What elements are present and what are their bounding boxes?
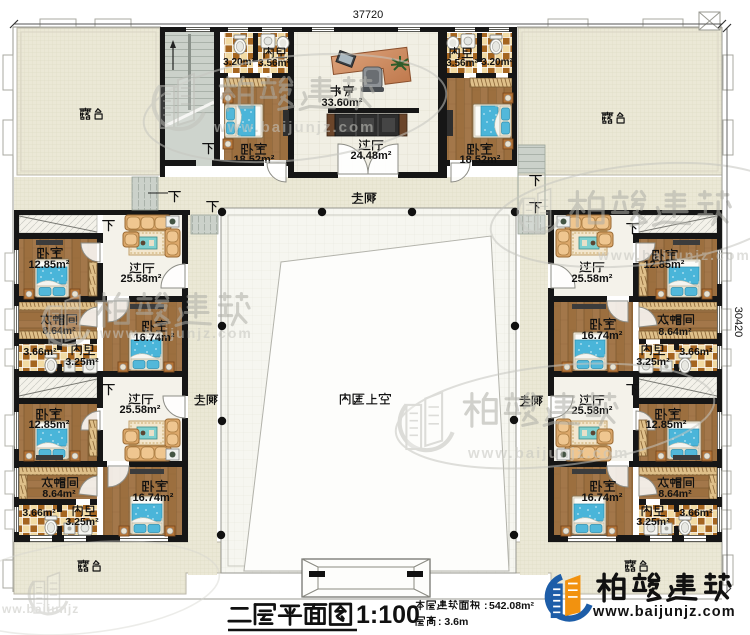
svg-text:ww.baijunjz: ww.baijunjz	[1, 602, 79, 616]
svg-text:3.66m²: 3.66m²	[679, 346, 713, 358]
svg-text:: 3.6m: : 3.6m	[438, 616, 468, 628]
svg-text:www.baijunjz.com: www.baijunjz.com	[592, 604, 736, 620]
svg-text:37720: 37720	[353, 9, 384, 21]
svg-text:16.74m²: 16.74m²	[582, 492, 623, 504]
svg-text:25.58m²: 25.58m²	[121, 273, 162, 285]
svg-text:542.08m²: 542.08m²	[489, 600, 534, 612]
svg-text:3.66m²: 3.66m²	[679, 507, 713, 519]
svg-text:25.58m²: 25.58m²	[572, 273, 613, 285]
svg-text:25.58m²: 25.58m²	[120, 404, 161, 416]
svg-text:18.52m²: 18.52m²	[460, 154, 501, 166]
svg-text:8.64m²: 8.64m²	[658, 488, 692, 500]
svg-text:3.56m²: 3.56m²	[446, 58, 478, 69]
svg-text:8.64m²: 8.64m²	[42, 488, 76, 500]
svg-text:3.25m²: 3.25m²	[65, 516, 99, 528]
svg-text:3.25m²: 3.25m²	[65, 356, 99, 368]
svg-text:24.48m²: 24.48m²	[351, 150, 392, 162]
svg-text:16.74m²: 16.74m²	[582, 330, 623, 342]
svg-text:12.85m²: 12.85m²	[29, 419, 70, 431]
svg-text:1:100: 1:100	[356, 601, 420, 629]
svg-text:12.85m²: 12.85m²	[646, 419, 687, 431]
svg-text:30420: 30420	[732, 307, 744, 338]
svg-text:www.baijunjz.com: www.baijunjz.com	[467, 445, 629, 462]
svg-text:8.64m²: 8.64m²	[658, 326, 692, 338]
svg-text:16.74m²: 16.74m²	[133, 492, 174, 504]
svg-text::: :	[484, 600, 488, 612]
svg-text:18.52m²: 18.52m²	[234, 154, 275, 166]
svg-text:3.66m²: 3.66m²	[23, 346, 57, 358]
svg-text:3.20m²: 3.20m²	[481, 57, 513, 68]
svg-text:3.66m²: 3.66m²	[22, 507, 56, 519]
svg-text:www.baijunjz.com: www.baijunjz.com	[213, 119, 375, 136]
svg-text:www.baijunjz.com: www.baijunjz.com	[99, 325, 253, 341]
svg-text:12.85m²: 12.85m²	[29, 259, 70, 271]
svg-text:3.25m²: 3.25m²	[636, 516, 670, 528]
